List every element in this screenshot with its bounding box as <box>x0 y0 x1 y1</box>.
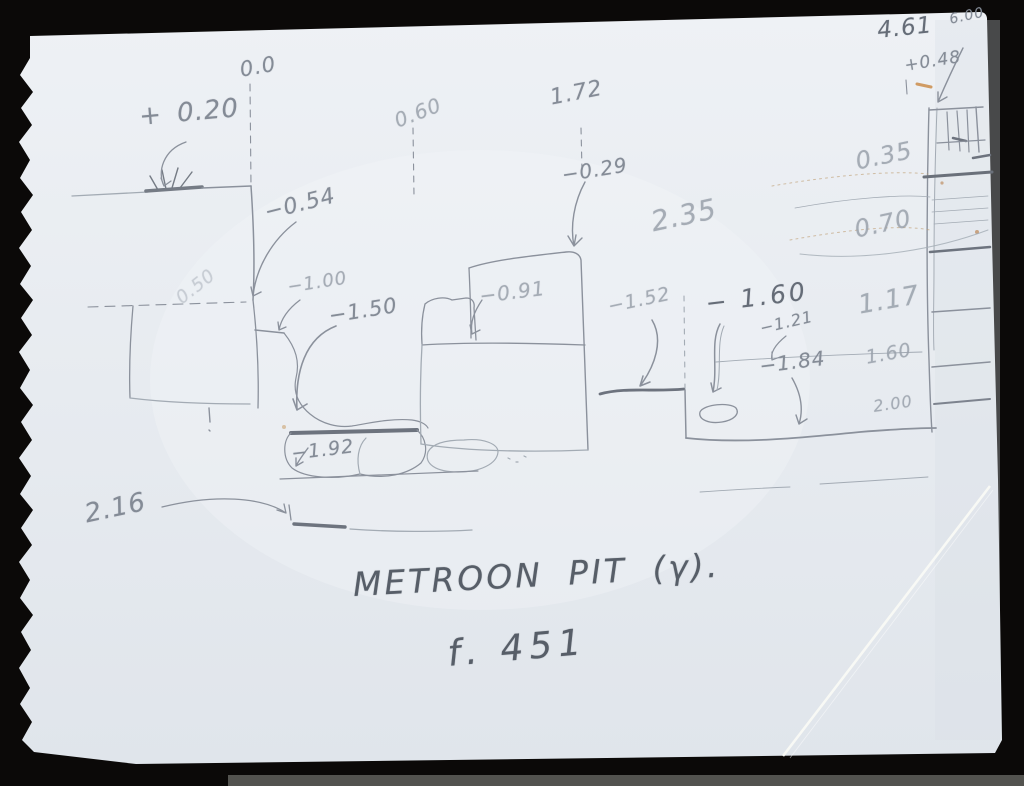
elevation-label-faint050: 0.50 <box>172 265 220 309</box>
sketch-title: METROON PIT (γ). <box>352 546 721 604</box>
elevation-label-600: 6.00 <box>948 5 986 28</box>
elevation-label-m152: −1.52 <box>606 283 672 318</box>
elevation-label-200: 2.00 <box>872 391 914 415</box>
elevation-label-m091: −0.91 <box>478 276 547 308</box>
scanned-field-sketch: 0.0 + 0.20 0.60 1.72 −0.54 −0.29 −1.00 −… <box>0 0 1024 786</box>
elevation-datum-label: 0.0 <box>238 52 278 82</box>
elevation-label-m029: −0.29 <box>560 153 629 187</box>
folio-number: f. 451 <box>446 622 589 675</box>
elevation-label-461: 4.61 <box>876 12 934 44</box>
elevation-label-070: 0.70 <box>852 204 914 243</box>
elevation-label-216: 2.16 <box>82 487 149 529</box>
elevation-label-035: 0.35 <box>853 136 915 175</box>
elevation-label-plus048: +0.48 <box>903 47 963 76</box>
elevation-label-160: 1.60 <box>864 339 913 369</box>
elevation-label-117: 1.17 <box>856 280 922 320</box>
elevation-label-m054: −0.54 <box>262 183 338 225</box>
elevation-label-m121: −1.21 <box>758 307 815 338</box>
elevation-label-m100: −1.00 <box>286 268 349 298</box>
elevation-label-plus020: + 0.20 <box>138 93 240 132</box>
elevation-label-m150: −1.50 <box>327 293 399 328</box>
elevation-label-m184: −1.84 <box>758 346 827 378</box>
annotation-layer: 0.0 + 0.20 0.60 1.72 −0.54 −0.29 −1.00 −… <box>0 0 1024 786</box>
elevation-label-172: 1.72 <box>548 76 605 111</box>
elevation-label-060: 0.60 <box>391 93 445 133</box>
elevation-label-m192: −1.92 <box>290 435 355 465</box>
elevation-label-235: 2.35 <box>648 192 720 238</box>
